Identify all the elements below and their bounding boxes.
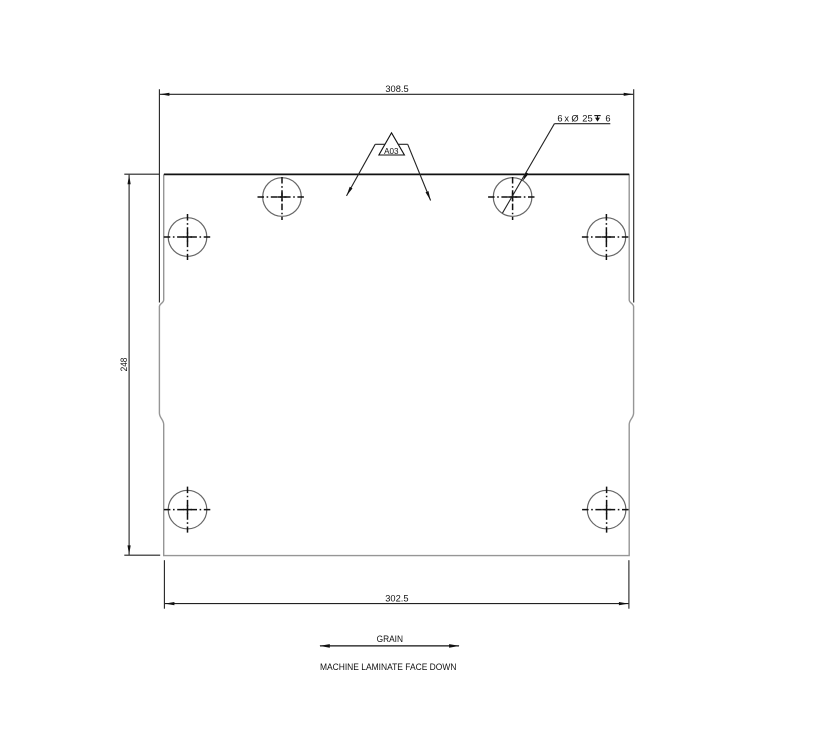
svg-text:x: x xyxy=(564,113,569,123)
svg-text:GRAIN: GRAIN xyxy=(377,634,403,644)
svg-text:6: 6 xyxy=(557,113,562,123)
svg-text:A03: A03 xyxy=(384,146,399,156)
svg-text:248: 248 xyxy=(119,358,129,372)
svg-text:302.5: 302.5 xyxy=(385,594,408,604)
svg-text:6: 6 xyxy=(605,113,610,123)
svg-text:MACHINE LAMINATE FACE DOWN: MACHINE LAMINATE FACE DOWN xyxy=(320,662,457,672)
svg-text:25: 25 xyxy=(582,113,592,123)
svg-text:308.5: 308.5 xyxy=(385,84,408,94)
svg-text:Ø: Ø xyxy=(571,113,578,123)
